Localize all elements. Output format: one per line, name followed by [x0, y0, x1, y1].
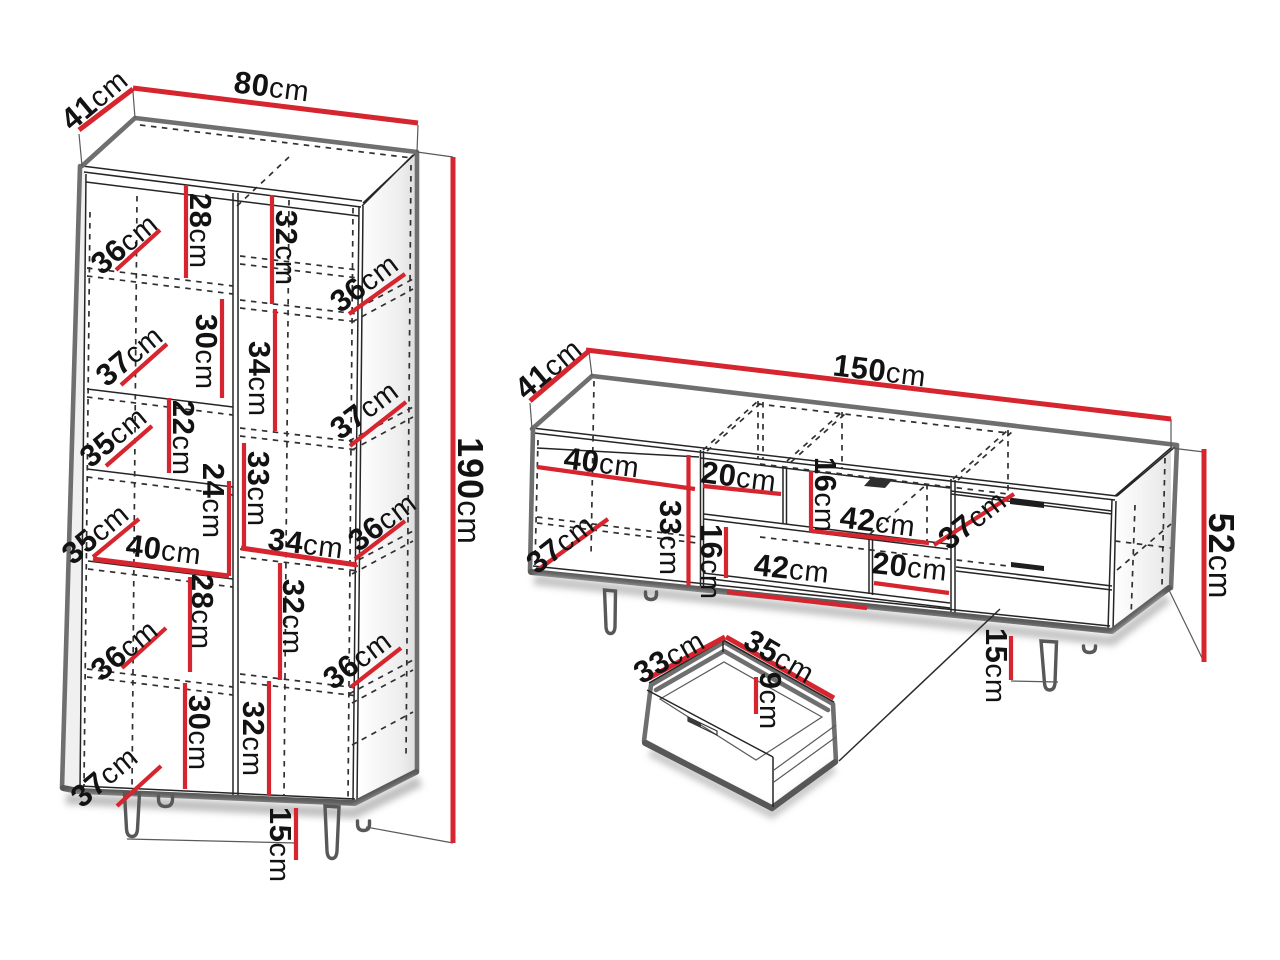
- svg-text:32cm: 32cm: [236, 701, 271, 777]
- svg-text:33cm: 33cm: [653, 500, 688, 576]
- svg-text:33cm: 33cm: [241, 451, 276, 527]
- svg-text:30cm: 30cm: [189, 314, 224, 390]
- svg-text:28cm: 28cm: [185, 574, 220, 650]
- svg-text:9cm: 9cm: [753, 672, 788, 730]
- svg-text:52cm: 52cm: [1201, 513, 1242, 600]
- svg-text:16cm: 16cm: [694, 524, 729, 600]
- svg-text:190cm: 190cm: [450, 437, 491, 545]
- svg-text:15cm: 15cm: [263, 807, 298, 883]
- svg-text:15cm: 15cm: [979, 628, 1014, 704]
- svg-text:16cm: 16cm: [808, 457, 843, 533]
- svg-text:24cm: 24cm: [196, 463, 231, 539]
- svg-text:32cm: 32cm: [276, 579, 311, 655]
- svg-text:34cm: 34cm: [242, 341, 277, 417]
- svg-text:30cm: 30cm: [182, 695, 217, 771]
- svg-text:32cm: 32cm: [269, 210, 304, 286]
- svg-text:28cm: 28cm: [183, 193, 218, 269]
- svg-text:22cm: 22cm: [166, 400, 201, 476]
